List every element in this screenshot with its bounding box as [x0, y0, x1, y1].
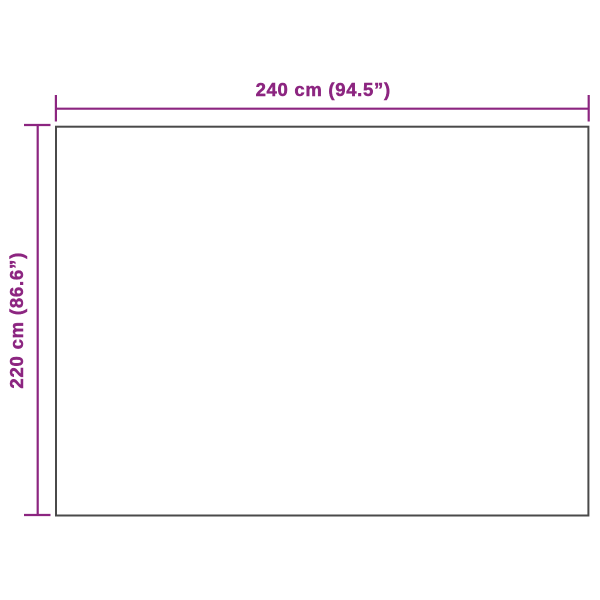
svg-text:220 cm (86.6”): 220 cm (86.6”) — [6, 252, 27, 389]
svg-text:240 cm (94.5”): 240 cm (94.5”) — [256, 79, 391, 100]
